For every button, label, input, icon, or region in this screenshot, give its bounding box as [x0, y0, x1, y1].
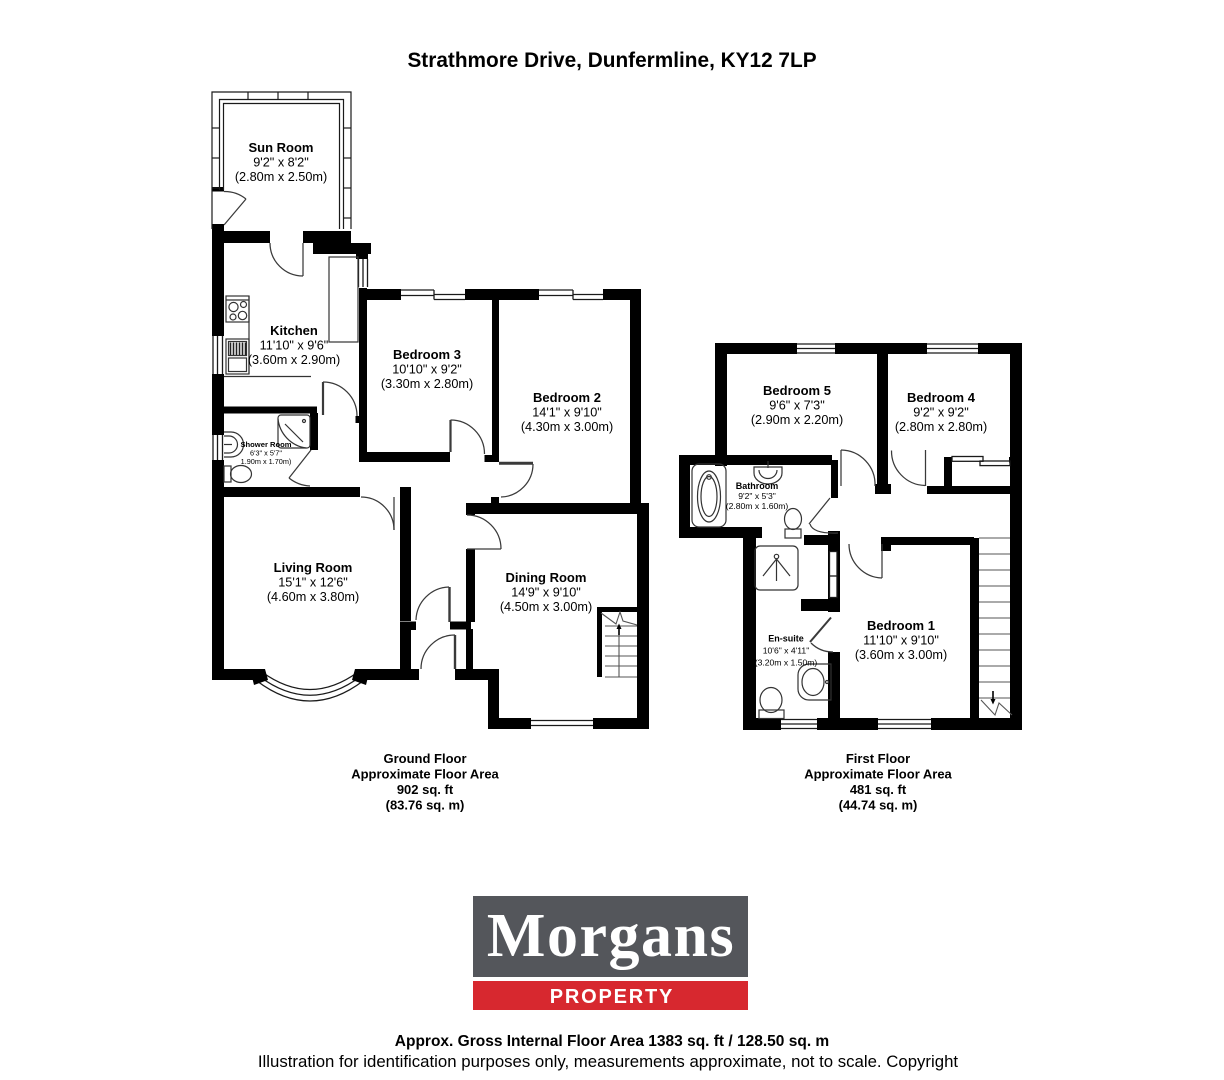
svg-text:1.90m x 1.70m): 1.90m x 1.70m) [241, 457, 292, 466]
svg-text:(4.30m x 3.00m): (4.30m x 3.00m) [521, 420, 613, 434]
svg-text:Bedroom 5: Bedroom 5 [763, 383, 831, 398]
svg-text:(2.80m x 1.60m): (2.80m x 1.60m) [726, 501, 789, 511]
svg-text:11'10" x 9'6": 11'10" x 9'6" [260, 339, 329, 353]
svg-text:Bedroom 2: Bedroom 2 [533, 390, 601, 405]
svg-text:Dining Room: Dining Room [506, 570, 587, 585]
svg-text:(4.60m x 3.80m): (4.60m x 3.80m) [267, 590, 359, 604]
svg-text:902 sq. ft: 902 sq. ft [397, 782, 454, 797]
svg-text:(3.60m x 2.90m): (3.60m x 2.90m) [248, 353, 340, 367]
svg-text:PROPERTY: PROPERTY [550, 986, 674, 1008]
svg-text:481 sq. ft: 481 sq. ft [850, 782, 907, 797]
svg-text:En-suite: En-suite [768, 634, 804, 644]
svg-text:(4.50m x 3.00m): (4.50m x 3.00m) [500, 600, 592, 614]
svg-text:9'2" x 5'3": 9'2" x 5'3" [738, 491, 776, 501]
svg-text:14'1" x 9'10": 14'1" x 9'10" [532, 406, 602, 420]
svg-text:14'9" x 9'10": 14'9" x 9'10" [511, 586, 581, 600]
svg-text:Kitchen: Kitchen [270, 323, 318, 338]
svg-text:(2.80m x 2.50m): (2.80m x 2.50m) [235, 170, 327, 184]
svg-text:(2.80m x 2.80m): (2.80m x 2.80m) [895, 420, 987, 434]
svg-text:Ground Floor: Ground Floor [383, 751, 466, 766]
svg-text:Approximate Floor Area: Approximate Floor Area [804, 767, 952, 782]
svg-text:(83.76 sq. m): (83.76 sq. m) [386, 798, 465, 813]
svg-text:Bedroom 3: Bedroom 3 [393, 347, 461, 362]
svg-text:Illustration for identificatio: Illustration for identification purposes… [258, 1052, 959, 1071]
svg-text:15'1" x 12'6": 15'1" x 12'6" [278, 576, 348, 590]
svg-text:Strathmore Drive, Dunfermline,: Strathmore Drive, Dunfermline, KY12 7LP [407, 49, 816, 72]
svg-text:9'2" x 8'2": 9'2" x 8'2" [253, 156, 308, 170]
svg-text:10'10" x 9'2": 10'10" x 9'2" [392, 363, 462, 377]
svg-text:(3.30m x 2.80m): (3.30m x 2.80m) [381, 377, 473, 391]
svg-text:(3.20m x 1.50m): (3.20m x 1.50m) [755, 658, 818, 668]
svg-text:(3.60m x 3.00m): (3.60m x 3.00m) [855, 648, 947, 662]
svg-text:Sun Room: Sun Room [249, 140, 314, 155]
svg-text:9'6" x 7'3": 9'6" x 7'3" [769, 399, 824, 413]
svg-text:Bathroom: Bathroom [736, 481, 779, 491]
svg-text:9'2" x 9'2": 9'2" x 9'2" [913, 406, 968, 420]
svg-text:Morgans: Morgans [487, 902, 735, 970]
svg-text:(2.90m x 2.20m): (2.90m x 2.20m) [751, 413, 843, 427]
svg-text:Approximate Floor Area: Approximate Floor Area [351, 767, 499, 782]
svg-text:Living Room: Living Room [274, 560, 353, 575]
svg-text:(44.74 sq. m): (44.74 sq. m) [839, 798, 918, 813]
svg-text:10'6" x 4'11": 10'6" x 4'11" [763, 646, 810, 656]
svg-text:11'10" x 9'10": 11'10" x 9'10" [863, 634, 939, 648]
svg-text:Bedroom 1: Bedroom 1 [867, 618, 935, 633]
svg-text:First Floor: First Floor [846, 751, 910, 766]
svg-text:Approx. Gross Internal Floor A: Approx. Gross Internal Floor Area 1383 s… [395, 1033, 829, 1050]
svg-text:Bedroom 4: Bedroom 4 [907, 390, 976, 405]
